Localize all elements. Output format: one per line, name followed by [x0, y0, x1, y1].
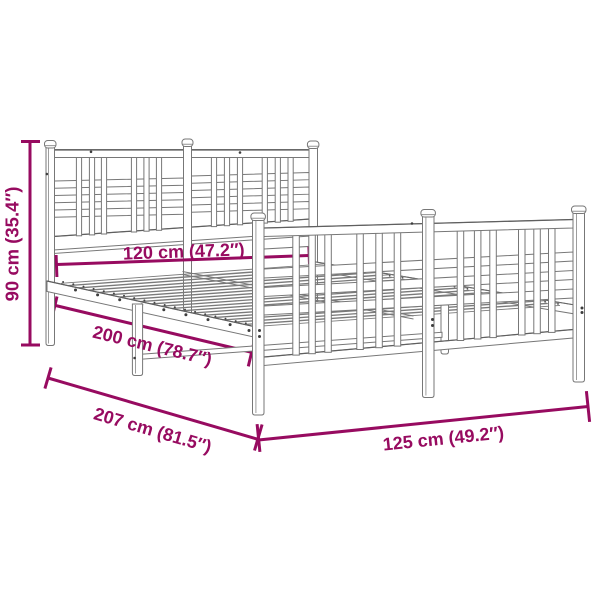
svg-text:90 cm (35.4″): 90 cm (35.4″) [2, 187, 23, 302]
svg-text:207 cm (81.5″): 207 cm (81.5″) [91, 404, 213, 457]
svg-text:120 cm (47.2″): 120 cm (47.2″) [123, 239, 245, 263]
svg-text:125 cm (49.2″): 125 cm (49.2″) [382, 422, 505, 454]
